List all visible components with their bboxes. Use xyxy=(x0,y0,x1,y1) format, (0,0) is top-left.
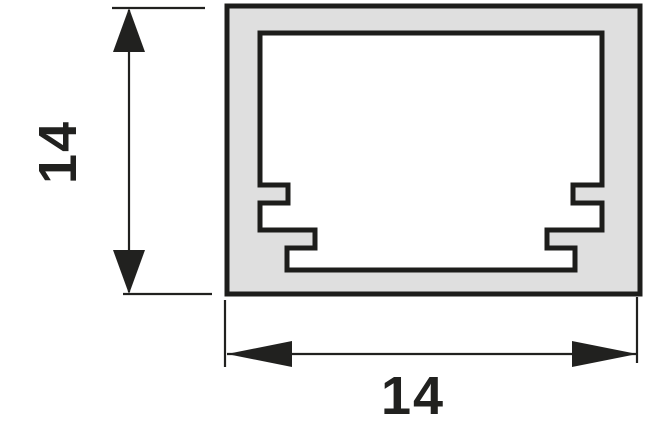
arrowhead-right-icon xyxy=(572,341,637,367)
technical-drawing-canvas: 14 14 xyxy=(0,0,650,437)
height-dimension-label: 14 xyxy=(31,120,85,184)
arrowhead-up-icon xyxy=(113,8,145,52)
arrowhead-down-icon xyxy=(113,250,145,294)
profile-cross-section-shape xyxy=(227,6,640,294)
width-dimension-label: 14 xyxy=(381,369,445,423)
arrowhead-left-icon xyxy=(227,341,292,367)
horizontal-dimension xyxy=(225,297,637,367)
profile-drawing xyxy=(0,0,650,437)
vertical-dimension xyxy=(112,8,212,294)
